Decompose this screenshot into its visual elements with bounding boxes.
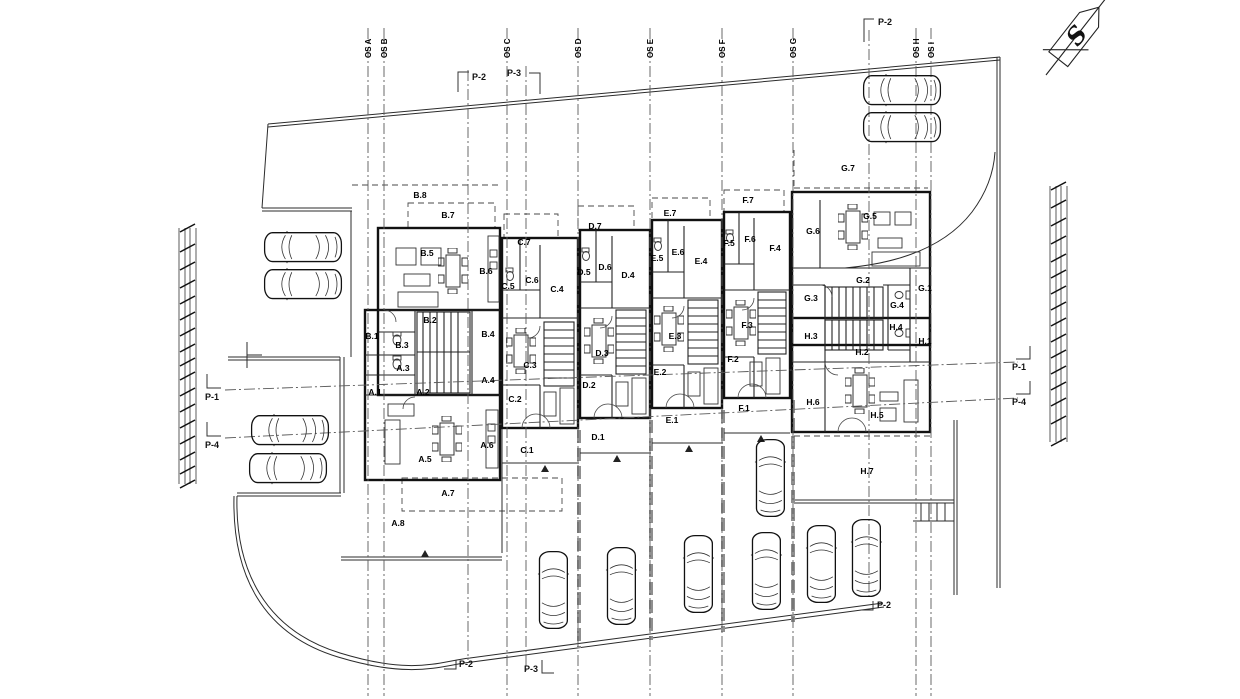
section-marker-bracket bbox=[1016, 381, 1030, 394]
dimension-tick bbox=[1051, 318, 1066, 326]
grid-axis-label: OS H bbox=[912, 38, 921, 58]
room-label-G.2: G.2 bbox=[856, 275, 870, 285]
parked-car bbox=[538, 552, 569, 629]
section-marker-label-P-2: P-2 bbox=[459, 659, 473, 669]
room-label-G.1: G.1 bbox=[918, 283, 932, 293]
room-label-E.1: E.1 bbox=[666, 415, 679, 425]
dimension-tick bbox=[180, 344, 195, 352]
dimension-tick bbox=[180, 312, 195, 320]
outdoor-steps bbox=[913, 503, 954, 521]
room-label-B.8: B.8 bbox=[413, 190, 427, 200]
building-units bbox=[365, 192, 930, 480]
site-plan-drawing: OS AOS BOS COS DOS EOS FOS GOS HOS I P-2… bbox=[0, 0, 1240, 699]
section-marker-bracket bbox=[207, 374, 221, 388]
room-label-E.5: E.5 bbox=[651, 253, 664, 263]
stairs-E bbox=[688, 300, 718, 364]
parked-car bbox=[252, 414, 329, 446]
grid-axis-label: OS C bbox=[503, 38, 512, 58]
room-label-B.6: B.6 bbox=[479, 266, 493, 276]
room-label-D.2: D.2 bbox=[582, 380, 596, 390]
room-label-C.3: C.3 bbox=[523, 360, 537, 370]
floor-plan-canvas: OS AOS BOS COS DOS EOS FOS GOS HOS I P-2… bbox=[0, 0, 1240, 699]
dimension-tick bbox=[180, 404, 195, 412]
room-label-A.1: A.1 bbox=[368, 387, 382, 397]
parked-car bbox=[751, 533, 782, 610]
dimension-tick bbox=[180, 280, 195, 288]
room-label-D.1: D.1 bbox=[591, 432, 605, 442]
dimension-tick bbox=[1051, 334, 1066, 342]
terraces bbox=[352, 150, 930, 557]
room-label-B.2: B.2 bbox=[423, 315, 437, 325]
dimension-tick bbox=[180, 372, 195, 380]
room-label-E.4: E.4 bbox=[695, 256, 708, 266]
room-label-H.4: H.4 bbox=[889, 322, 903, 332]
site-boundary bbox=[228, 57, 1000, 670]
room-label-E.2: E.2 bbox=[654, 367, 667, 377]
room-label-H.1: H.1 bbox=[918, 336, 932, 346]
dimension-tick bbox=[1051, 382, 1066, 390]
room-label-A.2: A.2 bbox=[416, 387, 430, 397]
grid-axis-label: OS B bbox=[380, 38, 389, 58]
room-label-F.3: F.3 bbox=[741, 320, 753, 330]
room-label-H.7: H.7 bbox=[860, 466, 874, 476]
room-label-A.3: A.3 bbox=[396, 363, 410, 373]
room-label-D.7: D.7 bbox=[588, 221, 602, 231]
dimension-tick bbox=[180, 480, 195, 488]
room-label-H.2: H.2 bbox=[855, 347, 869, 357]
dimension-tick bbox=[180, 466, 195, 474]
dimension-tick bbox=[1051, 200, 1066, 208]
room-label-B.4: B.4 bbox=[481, 329, 495, 339]
stairs-D bbox=[616, 310, 646, 374]
room-label-H.3: H.3 bbox=[804, 331, 818, 341]
room-label-H.6: H.6 bbox=[806, 397, 820, 407]
section-marker-bracket bbox=[1016, 346, 1030, 359]
dimension-tick bbox=[180, 420, 195, 428]
dimension-tick bbox=[1051, 416, 1066, 424]
dining-table-B5 bbox=[438, 248, 468, 294]
parked-car bbox=[864, 111, 941, 143]
dimension-tick bbox=[1051, 398, 1066, 406]
dimension-tick bbox=[1051, 236, 1066, 244]
room-label-C.7: C.7 bbox=[517, 237, 531, 247]
section-marker-label-P-3: P-3 bbox=[524, 664, 538, 674]
dimension-tick bbox=[180, 244, 195, 252]
section-marker-label-P-2: P-2 bbox=[877, 600, 891, 610]
north-arrow: S bbox=[1032, 0, 1121, 86]
stairs-G bbox=[825, 287, 883, 318]
parked-car bbox=[806, 526, 837, 603]
stairs-C bbox=[544, 322, 574, 386]
dimension-tick bbox=[180, 262, 195, 270]
dimension-tick bbox=[180, 452, 195, 460]
parked-car bbox=[606, 548, 637, 625]
room-label-D.4: D.4 bbox=[621, 270, 635, 280]
dimension-tick bbox=[180, 296, 195, 304]
room-label-C.2: C.2 bbox=[508, 394, 522, 404]
room-label-H.5: H.5 bbox=[870, 410, 884, 420]
room-label-C.4: C.4 bbox=[550, 284, 564, 294]
stairs-F bbox=[758, 292, 786, 354]
section-marker-label-P-2: P-2 bbox=[472, 72, 486, 82]
room-label-A.4: A.4 bbox=[481, 375, 495, 385]
room-label-F.4: F.4 bbox=[769, 243, 781, 253]
dimension-tick bbox=[180, 358, 195, 366]
room-label-G.6: G.6 bbox=[806, 226, 820, 236]
parked-car bbox=[250, 452, 327, 484]
room-label-G.3: G.3 bbox=[804, 293, 818, 303]
room-label-G.5: G.5 bbox=[863, 211, 877, 221]
room-label-D.6: D.6 bbox=[598, 262, 612, 272]
north-arrow-letter: S bbox=[1060, 20, 1094, 52]
grid-axis-label: OS G bbox=[789, 38, 798, 58]
section-marker-label-P-3: P-3 bbox=[507, 68, 521, 78]
parked-car bbox=[864, 74, 941, 106]
grid-axis-label: OS A bbox=[364, 39, 373, 58]
room-label-A.6: A.6 bbox=[480, 440, 494, 450]
room-label-A.7: A.7 bbox=[441, 488, 455, 498]
kitchen-A6 bbox=[486, 410, 498, 468]
dimension-tick bbox=[180, 436, 195, 444]
section-marker-label-P-2: P-2 bbox=[878, 17, 892, 27]
dining-table-E3 bbox=[654, 306, 684, 352]
room-label-F.1: F.1 bbox=[738, 403, 750, 413]
room-label-D.5: D.5 bbox=[577, 267, 591, 277]
parked-car bbox=[683, 536, 714, 613]
room-label-C.1: C.1 bbox=[520, 445, 534, 455]
dimension-tick bbox=[1051, 182, 1066, 190]
section-marker-label-P-4: P-4 bbox=[205, 440, 219, 450]
room-label-B.1: B.1 bbox=[365, 331, 379, 341]
room-label-A.8: A.8 bbox=[391, 518, 405, 528]
dimension-tick bbox=[1051, 366, 1066, 374]
room-label-E.3: E.3 bbox=[669, 331, 682, 341]
parked-car bbox=[265, 268, 342, 300]
room-label-A.5: A.5 bbox=[418, 454, 432, 464]
parked-car bbox=[265, 231, 342, 263]
section-marker-label-P-1: P-1 bbox=[205, 392, 219, 402]
dimension-tick bbox=[1051, 302, 1066, 310]
room-label-E.6: E.6 bbox=[672, 247, 685, 257]
room-label-F.6: F.6 bbox=[744, 234, 756, 244]
grid-axis-label: OS D bbox=[574, 38, 583, 58]
section-marker-label-P-4: P-4 bbox=[1012, 397, 1026, 407]
room-label-D.3: D.3 bbox=[595, 348, 609, 358]
room-label-B.7: B.7 bbox=[441, 210, 455, 220]
parked-car bbox=[755, 440, 786, 517]
dimension-tick bbox=[1051, 254, 1066, 262]
room-label-B.3: B.3 bbox=[395, 340, 409, 350]
parked-car bbox=[851, 520, 882, 597]
section-marker-bracket bbox=[458, 72, 469, 92]
section-marker-bracket bbox=[529, 73, 540, 94]
dimension-tick bbox=[1051, 286, 1066, 294]
room-label-F.5: F.5 bbox=[723, 238, 735, 248]
room-label-E.7: E.7 bbox=[664, 208, 677, 218]
room-label-F.2: F.2 bbox=[727, 354, 739, 364]
section-marker-bracket bbox=[207, 422, 221, 436]
dimension-tick bbox=[1051, 438, 1066, 446]
dimension-tick bbox=[1051, 270, 1066, 278]
grid-axis-label: OS E bbox=[646, 38, 655, 58]
dimension-tick bbox=[180, 224, 195, 232]
dimension-tick bbox=[180, 388, 195, 396]
dimension-tick bbox=[1051, 218, 1066, 226]
room-label-B.5: B.5 bbox=[420, 248, 434, 258]
section-marker-bracket bbox=[542, 660, 554, 673]
room-label-F.7: F.7 bbox=[742, 195, 754, 205]
grid-axis-label: OS F bbox=[718, 39, 727, 58]
room-label-C.6: C.6 bbox=[525, 275, 539, 285]
dimension-strips-layer bbox=[179, 182, 1067, 488]
grid-axis-label: OS I bbox=[927, 42, 936, 58]
dining-table-A5 bbox=[432, 416, 462, 462]
dimension-tick bbox=[180, 328, 195, 336]
room-label-G.4: G.4 bbox=[890, 300, 904, 310]
room-label-G.7: G.7 bbox=[841, 163, 855, 173]
dimension-tick bbox=[1051, 350, 1066, 358]
street-post bbox=[247, 342, 262, 368]
dining-table-H5 bbox=[845, 368, 875, 414]
section-marker-label-P-1: P-1 bbox=[1012, 362, 1026, 372]
room-label-C.5: C.5 bbox=[501, 281, 515, 291]
